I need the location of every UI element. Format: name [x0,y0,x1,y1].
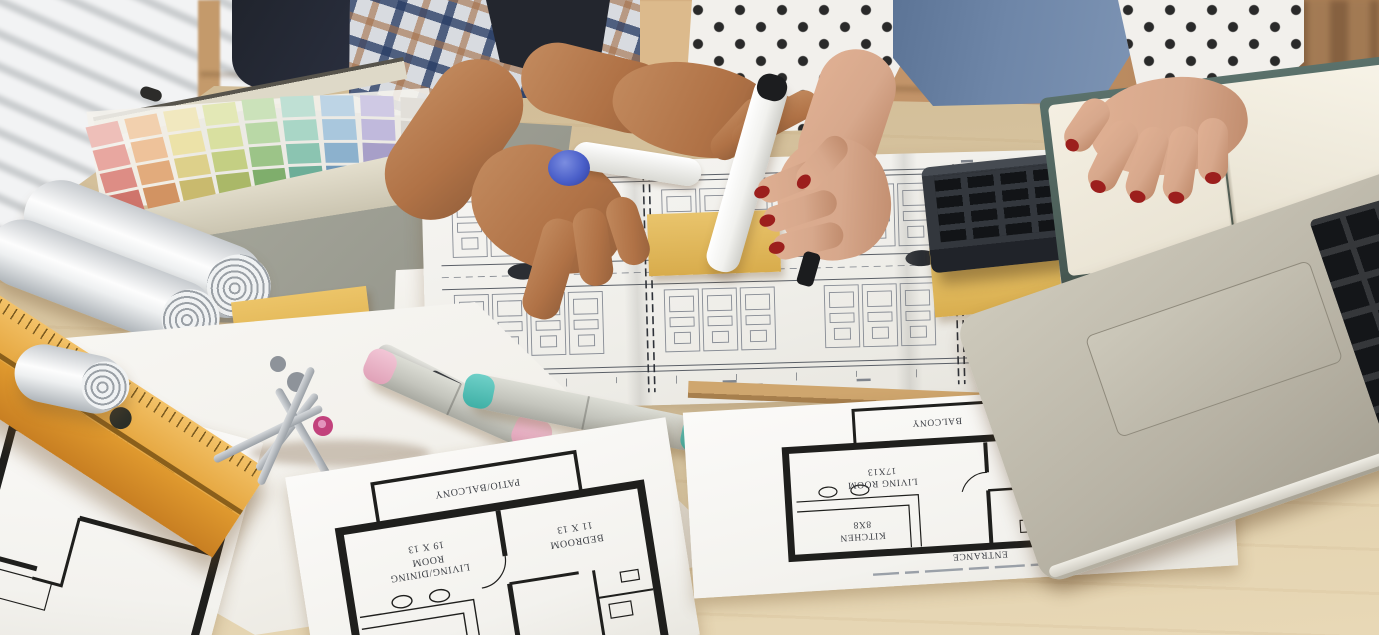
plan-right-balcony-label: BALCONY [912,415,963,428]
plan-right-kitchen-dim: 8X8 [853,519,872,530]
marker-seam [581,396,590,430]
woman-finger [1198,118,1228,182]
plan-center-balcony-label: PATIO/BALCONY [434,476,521,500]
plan-center-living-dim: 19 X 13 [407,539,445,556]
plan-center-bedroom-dim: 11 X 13 [556,519,593,536]
plan-center-bedroom-label: BEDROOM [549,531,604,550]
compass-leg [256,366,315,486]
plan-right-living-dim: 17X13 [867,465,896,477]
plan-right-living-label: LIVING ROOM [847,476,918,490]
marker-seam [446,384,462,416]
compass-hinge [270,356,286,372]
photo-scene: BALCONY [0,0,1379,635]
plan-right-kitchen-label: KITCHEN [839,530,885,543]
red-nail [1205,172,1221,184]
pen-blue-cap [548,150,590,186]
